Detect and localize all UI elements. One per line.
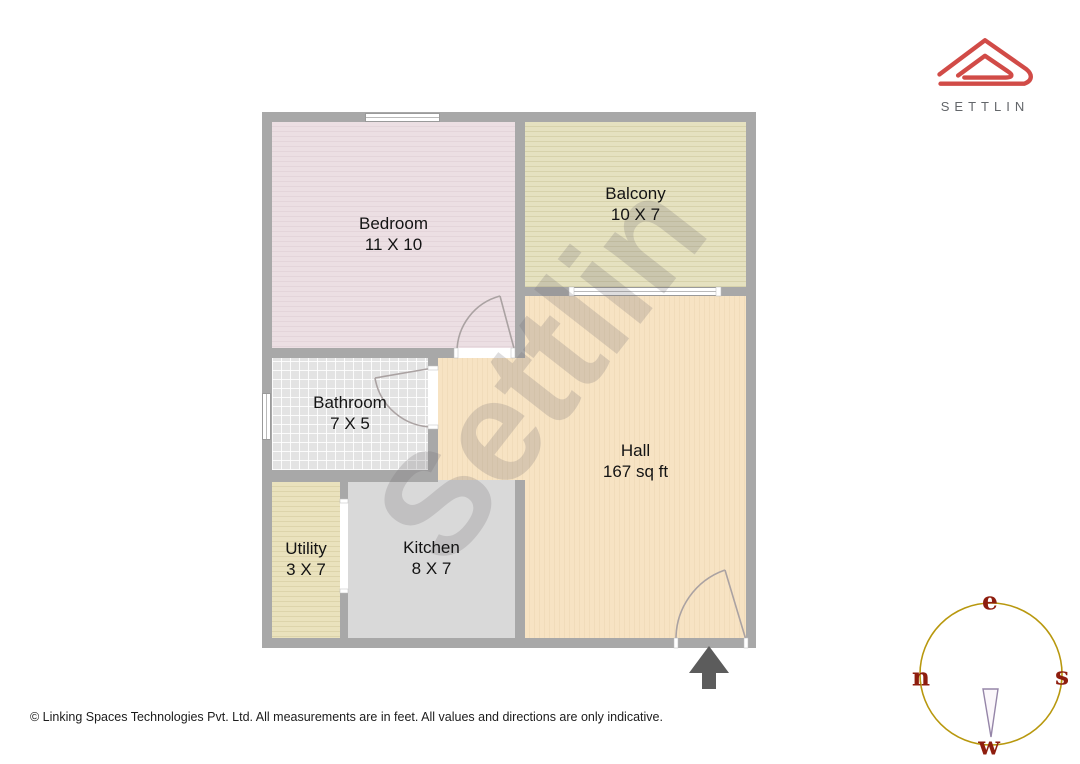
room-size: 7 X 5 — [330, 414, 370, 435]
floorplan-page: Settlin Bedroom 11 X 10 Balcony 10 X 7 H… — [0, 0, 1080, 764]
bedroom-label: Bedroom 11 X 10 — [272, 122, 515, 348]
room-size: 167 sq ft — [603, 462, 668, 483]
bathroom-window — [262, 393, 271, 440]
room-name: Utility — [285, 539, 327, 560]
room-name: Balcony — [605, 184, 665, 205]
compass-rose: e n s w — [905, 585, 1077, 757]
compass-needle-icon — [983, 689, 998, 737]
bedroom-window — [365, 113, 440, 122]
house-roof-icon — [933, 32, 1037, 92]
wall-bedroom-balcony — [515, 122, 525, 358]
wall-bedroom-bottom — [272, 348, 457, 358]
room-name: Bedroom — [359, 214, 428, 235]
room-name: Hall — [621, 441, 650, 462]
wall-utility-kitchen-upper — [340, 480, 348, 503]
utility-label: Utility 3 X 7 — [272, 482, 340, 638]
entrance-arrow-icon — [689, 646, 729, 689]
footer-disclaimer: © Linking Spaces Technologies Pvt. Ltd. … — [30, 710, 663, 724]
brand-name: SETTLIN — [933, 99, 1037, 114]
balcony-label: Balcony 10 X 7 — [525, 122, 746, 287]
bathroom-label: Bathroom 7 X 5 — [272, 358, 428, 470]
room-size: 3 X 7 — [286, 560, 326, 581]
kitchen-label: Kitchen 8 X 7 — [348, 480, 515, 638]
room-name: Kitchen — [403, 538, 460, 559]
wall-kitchen-hall — [515, 480, 525, 638]
wall-bathroom-right-upper — [428, 358, 438, 370]
compass-letter-west: w — [978, 732, 1000, 761]
settlin-logo: SETTLIN — [933, 32, 1037, 114]
compass-letter-south: s — [1055, 662, 1069, 691]
balcony-sliding-door — [571, 287, 718, 296]
room-size: 8 X 7 — [412, 559, 452, 580]
wall-utility-kitchen-lower — [340, 591, 348, 638]
room-size: 10 X 7 — [611, 205, 660, 226]
room-size: 11 X 10 — [365, 235, 422, 256]
compass-letter-north: n — [912, 663, 930, 692]
hall-label: Hall 167 sq ft — [525, 296, 746, 628]
room-name: Bathroom — [313, 393, 387, 414]
compass-letter-east: e — [982, 587, 998, 616]
